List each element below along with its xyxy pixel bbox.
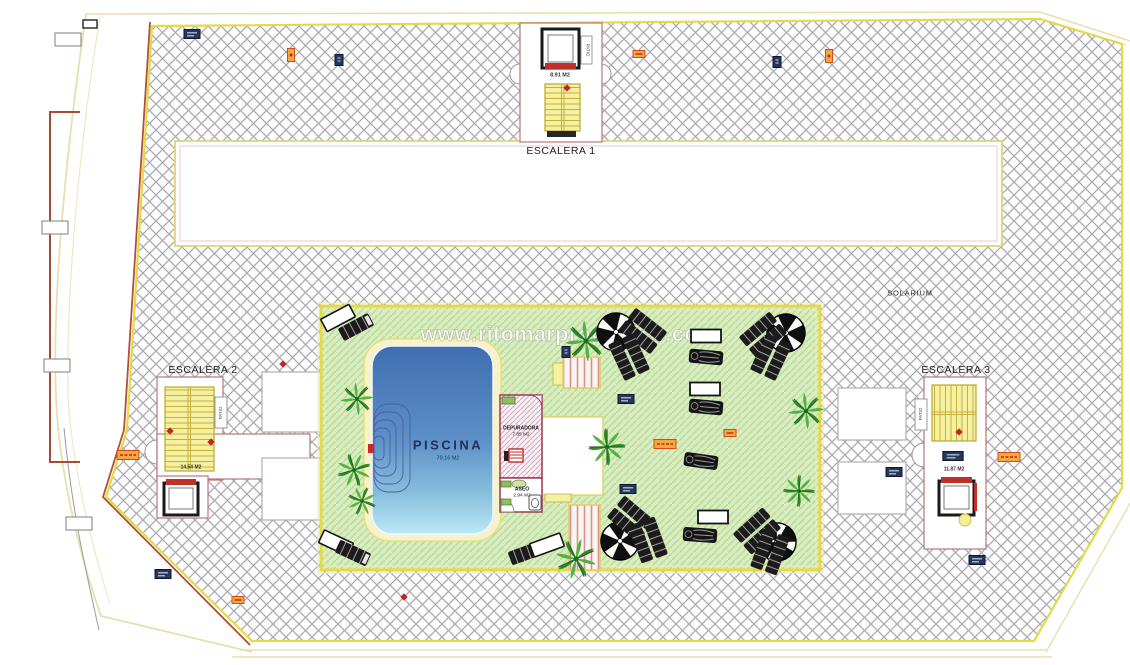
cad-tag [83, 20, 97, 28]
escalera1-area: 8.91 M2 [550, 73, 570, 79]
lightwell-right-upper [838, 388, 906, 440]
aseo-area: 2.94 M2 [513, 495, 530, 500]
terrace-outline [50, 112, 80, 462]
escalera3-area: 11.87 M2 [944, 468, 965, 473]
piscina-area: 70.16 M2 [437, 456, 460, 462]
marker-circle [959, 514, 971, 526]
stairs-3 [932, 385, 976, 441]
escalera1-label: ESCALERA 1 [526, 146, 595, 157]
escalera3-label: ESCALERA 3 [921, 365, 990, 376]
occupied-lounger [683, 527, 718, 543]
stairs-2 [165, 387, 214, 471]
floor-plan-canvas: www.ritomarproperties.com [0, 0, 1130, 665]
depuradora-area: 7.85 M2 [512, 434, 529, 439]
table [690, 383, 720, 396]
occupied-lounger [688, 349, 723, 366]
aseo-label: ASEO [515, 488, 529, 493]
escalera2-shaft-label: PATIO [219, 407, 224, 420]
top-void-band [175, 141, 1002, 246]
escalera1-shaft-label: PATIO [584, 44, 589, 57]
lightwell-left-lower [262, 458, 322, 520]
pergola-top [563, 357, 600, 388]
depuradora-label: DEPURADORA [503, 427, 539, 432]
table [698, 511, 728, 524]
occupied-lounger [688, 399, 723, 416]
lightwell-left-upper [262, 372, 322, 432]
solarium-label: SOLARIUM [887, 289, 933, 297]
escalera2-area: 14.54 M2 [181, 466, 202, 471]
table [691, 330, 721, 343]
pool-marker [368, 444, 374, 453]
piscina-label: PISCINA [413, 439, 483, 452]
escalera3-shaft-label: PATIO [919, 408, 924, 421]
stairs-1 [545, 84, 580, 131]
escalera1-block [510, 23, 611, 142]
floor-plan-drawing: www.ritomarproperties.com [0, 0, 1130, 665]
escalera2-label: ESCALERA 2 [168, 365, 237, 376]
garden-void [542, 417, 603, 495]
